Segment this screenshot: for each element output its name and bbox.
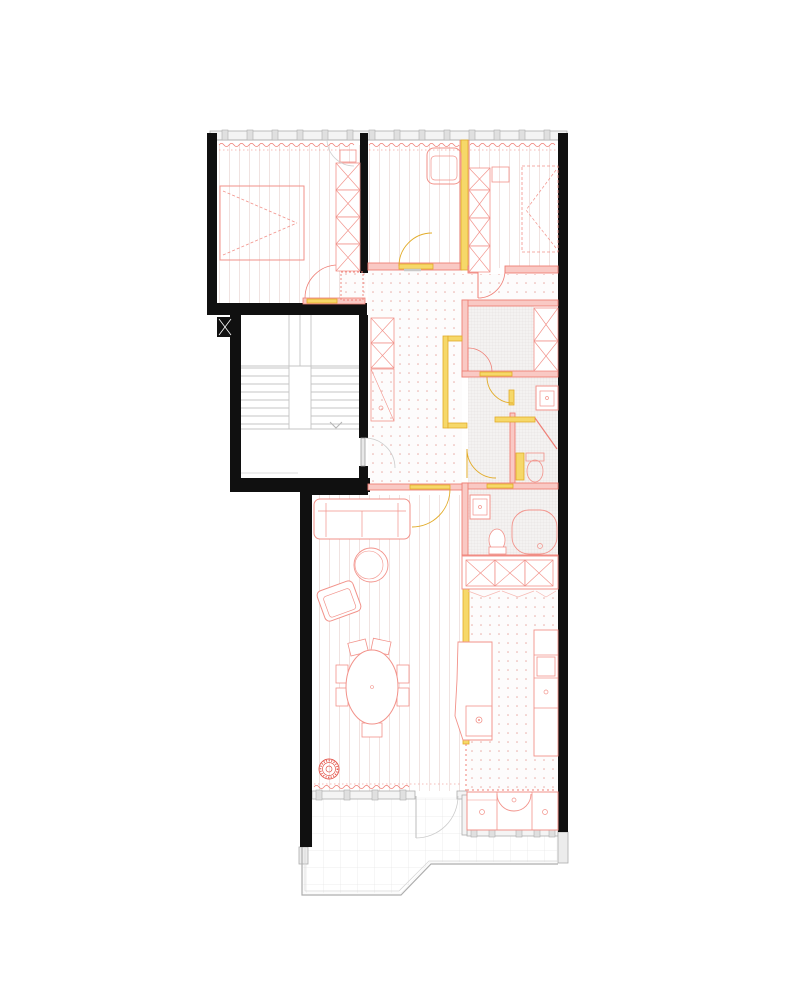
- dining-chair-right-1: [397, 665, 409, 683]
- wall-yellow-bath-mid-h: [495, 417, 535, 422]
- wardrobe-row-cells: [466, 560, 553, 586]
- entry-door-leaf: [361, 438, 365, 466]
- floor-plan-drawing: [207, 130, 568, 895]
- wall-yellow-bedrooms-divider: [461, 140, 468, 270]
- door-bath-top-slider: [480, 372, 512, 376]
- door-bedroom-left-panel: [307, 299, 337, 303]
- floor-plan-page: [0, 0, 800, 1000]
- dining-table: [346, 650, 398, 724]
- wall-bath-mid-inner-v: [510, 413, 515, 483]
- floor-hall-niche: [340, 272, 366, 302]
- wall-yellow-hall-niche-bottom: [448, 423, 467, 428]
- facade-north-window-band: [210, 131, 567, 140]
- dining-chair-bottom: [362, 723, 382, 737]
- floor-hall-lobby: [462, 274, 558, 301]
- kitchen-counter: [534, 630, 558, 756]
- cabinet-yellow-bath-mid: [516, 453, 524, 480]
- wall-right-main: [558, 133, 568, 832]
- wall-bath-lower-west: [462, 483, 468, 560]
- stair-landing-center: [289, 366, 311, 429]
- wall-yellow-hall-niche-v: [443, 336, 448, 428]
- stair-direction-chevron: [330, 422, 342, 428]
- wardrobe-bedroom-left: [336, 163, 360, 271]
- facade-south-window-band: [312, 791, 415, 799]
- mirror-cabinet-bath-mid: [536, 386, 558, 410]
- floor-bath-top: [468, 306, 534, 371]
- terrace-pillar-right: [558, 832, 568, 863]
- wall-left-upper: [207, 133, 217, 315]
- toilet-bath-lower-tank: [489, 547, 506, 554]
- wall-divider-bedrooms: [360, 133, 368, 273]
- wall-yellow-hall-niche-top: [448, 336, 462, 341]
- wall-stair-left: [230, 315, 241, 492]
- door-bedroom-middle-panel: [399, 264, 433, 269]
- wall-stair-door-jamb-top: [359, 430, 368, 438]
- floor-plan-svg: [0, 0, 800, 1000]
- wardrobe-bath-top: [534, 308, 558, 371]
- door-bath-lower-slider: [487, 484, 513, 488]
- kitchen-island-tap-dot: [478, 719, 480, 721]
- stair-treads-left: [241, 368, 289, 424]
- wardrobe-hall: [371, 318, 394, 368]
- facade-bay-left-jamb: [462, 795, 467, 835]
- wall-bath-top-north: [462, 300, 558, 306]
- kitchen-island: [455, 642, 492, 740]
- wall-bedroom-right-south-b: [505, 266, 558, 273]
- wall-west-lower: [300, 492, 312, 847]
- wall-stair-right-upper: [359, 315, 368, 430]
- stair-treads-right: [311, 368, 359, 424]
- wall-bath-top-west: [462, 300, 468, 377]
- floor-bedroom-middle: [368, 145, 460, 264]
- wall-band-bedroom-left-bottom: [207, 303, 367, 315]
- wall-stair-door-jamb-bottom: [359, 466, 368, 478]
- terrace-pillar-left: [299, 847, 308, 864]
- door-living-panel: [410, 485, 450, 489]
- dining-chair-right-2: [397, 688, 409, 706]
- wardrobe-bedroom-right: [469, 168, 490, 272]
